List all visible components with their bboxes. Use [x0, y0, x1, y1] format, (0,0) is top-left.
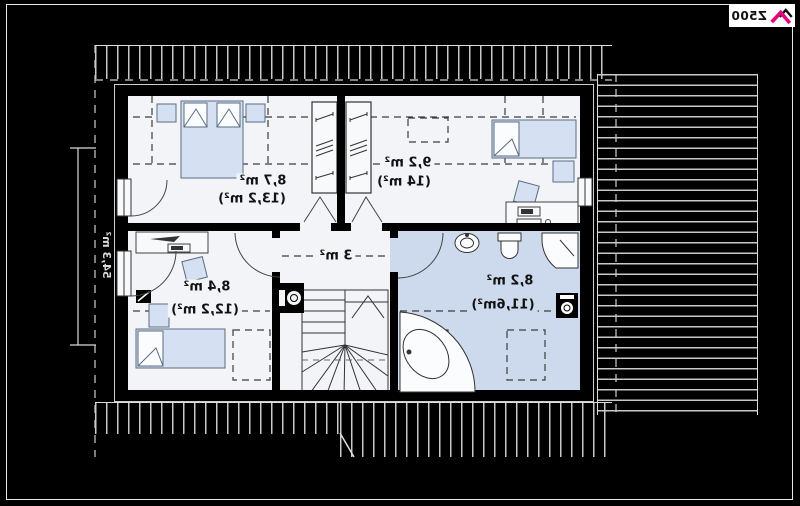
wall-right — [580, 86, 592, 400]
floorplan-page: 8,7 m² (13,2 m²) 9,2 m² (14 m²) 3 m² 8,4… — [0, 0, 800, 506]
winder-stairs — [302, 290, 388, 396]
wall-bottom — [116, 390, 592, 400]
room-label-area: 8,7 m² — [237, 174, 290, 189]
roof-logo-icon — [769, 7, 793, 25]
floorplan-drawing — [0, 0, 800, 506]
logo-box: Z500 — [729, 4, 795, 27]
chimney-flue — [276, 283, 304, 313]
room-label-area: 9,2 m² — [382, 156, 435, 171]
nightstand — [553, 161, 574, 182]
wall-bedroom-divider — [337, 96, 345, 231]
wall-top — [116, 86, 592, 96]
office-chair — [182, 257, 207, 282]
side-dimension-label: 54,3 m² — [98, 225, 114, 285]
nightstand — [149, 304, 169, 327]
nightstand — [246, 104, 265, 122]
room-label-floor-area: (14 m²) — [374, 175, 434, 190]
logo-mirror-wrap: Z500 — [731, 7, 794, 25]
pillow — [494, 122, 519, 156]
washing-machine — [556, 293, 578, 318]
room-label-area: 8,4 m² — [181, 280, 234, 295]
room-label-floor-area: (12,2 m²) — [168, 303, 242, 318]
logo-text: Z500 — [731, 9, 767, 23]
room-label-area: 3 m² — [317, 249, 356, 264]
nightstand — [157, 104, 176, 122]
roof-valley-line — [340, 433, 354, 457]
radiator — [136, 290, 151, 303]
wall-left — [116, 86, 128, 400]
room-label-area: 8,2 m² — [484, 274, 537, 289]
room-label-floor-area: (13,2 m²) — [215, 192, 289, 207]
dimension-bracket — [70, 148, 96, 345]
room-label-floor-area: (11,6m²) — [468, 298, 537, 313]
pillow — [138, 331, 163, 366]
sink — [455, 234, 479, 253]
